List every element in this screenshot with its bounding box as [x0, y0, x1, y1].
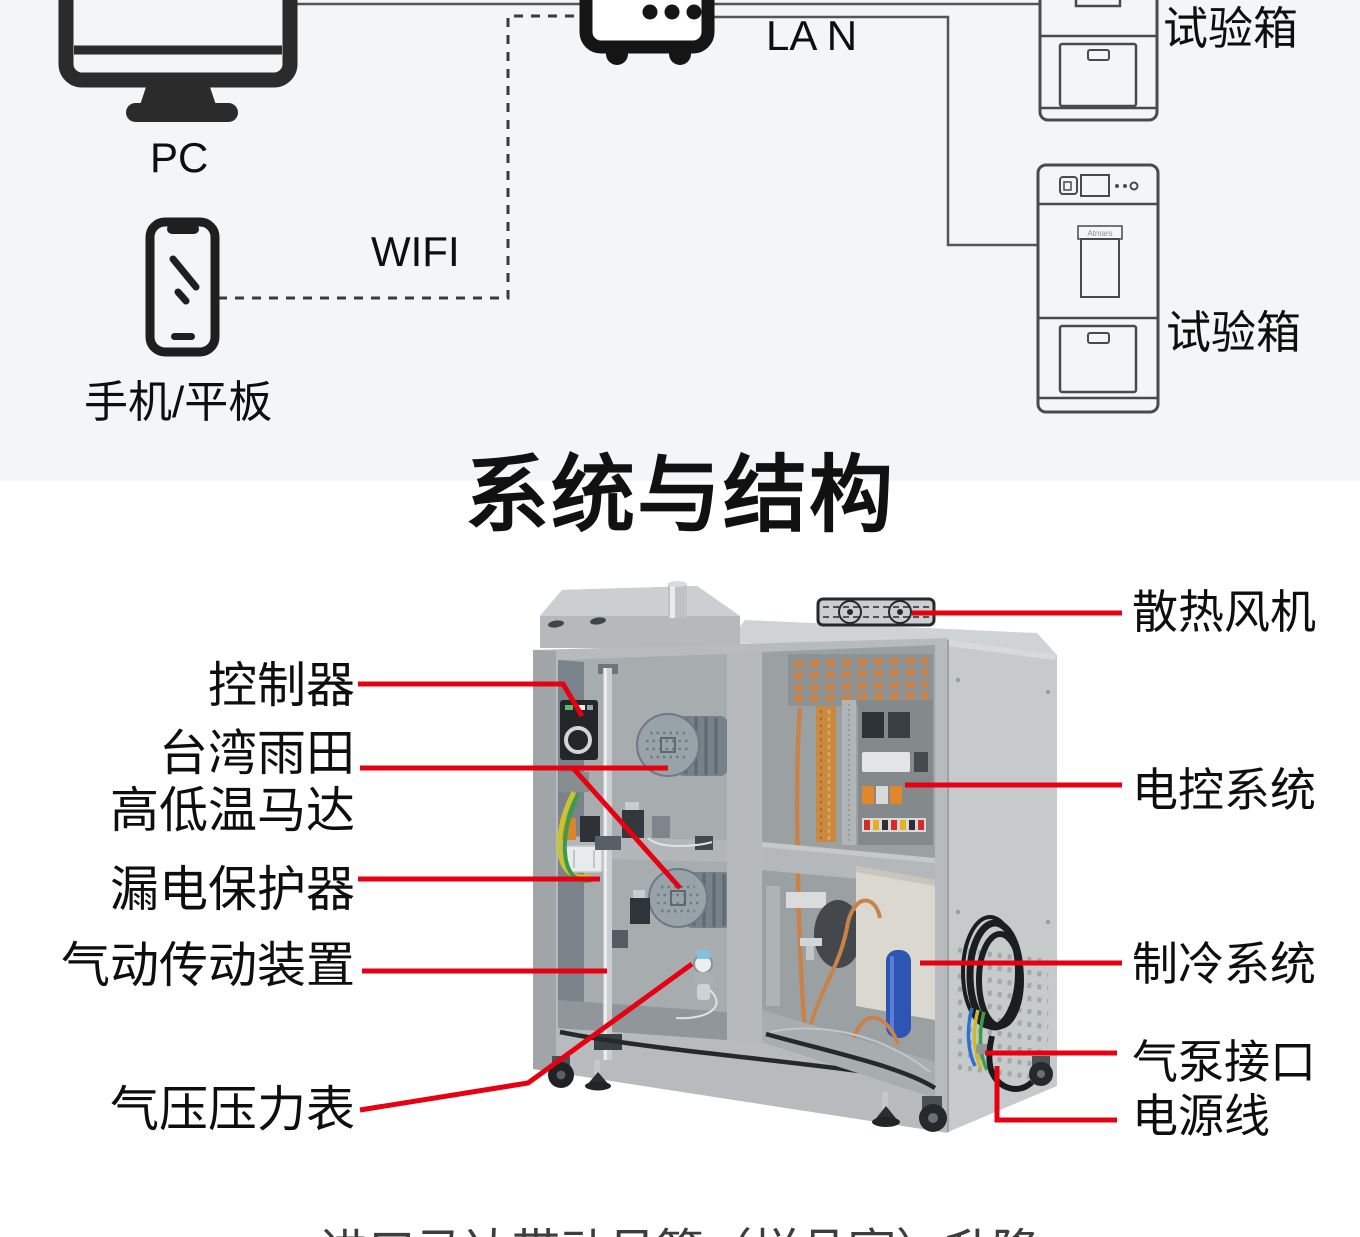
callout-label-pneumatic-drive: 气动传动装置	[61, 938, 355, 995]
bottom-caption: 进口马达带动吊篮（样品室）升降	[0, 1212, 1360, 1237]
machine-hood	[540, 581, 740, 648]
callout-label-controller: 控制器	[208, 658, 355, 715]
machine-center-pillar	[727, 650, 762, 1044]
page: Atmars PC 手机/平板 WIFI LA N 试验箱 试验箱 系统与结构	[0, 0, 1360, 1237]
callout-label-motor-line1: 台湾雨田	[110, 726, 355, 783]
machine-right-bay	[762, 645, 935, 1098]
electric-control-part	[816, 700, 933, 845]
callout-label-electric-control: 电控系统	[1132, 766, 1316, 814]
callout-label-motor: 台湾雨田 高低温马达	[110, 726, 355, 840]
callout-label-pressure-gauge: 气压压力表	[110, 1082, 355, 1139]
lower-motor-part	[649, 869, 732, 928]
callout-label-cooling-fan: 散热风机	[1132, 588, 1316, 636]
condenser-part	[788, 654, 933, 706]
callout-label-power-cord: 电源线	[1132, 1092, 1270, 1140]
callout-label-refrigeration: 制冷系统	[1132, 940, 1316, 988]
callout-label-air-pump-port: 气泵接口	[1132, 1038, 1316, 1086]
callout-label-leakage-protector: 漏电保护器	[110, 862, 355, 919]
callout-label-motor-line2: 高低温马达	[110, 783, 355, 840]
